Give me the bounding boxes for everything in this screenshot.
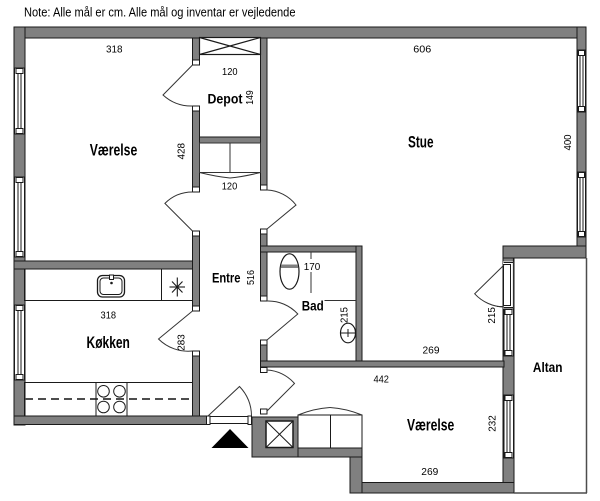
svg-text:Note: Alle mål er cm. Alle mål: Note: Alle mål er cm. Alle mål og invent… [24, 6, 296, 20]
svg-text:Altan: Altan [533, 359, 563, 375]
svg-text:606: 606 [413, 44, 431, 56]
svg-text:318: 318 [101, 310, 117, 322]
svg-text:269: 269 [421, 466, 438, 478]
svg-text:120: 120 [222, 66, 238, 78]
svg-text:232: 232 [486, 415, 498, 432]
svg-text:400: 400 [562, 134, 574, 150]
svg-text:516: 516 [245, 270, 257, 285]
svg-text:269: 269 [423, 345, 440, 357]
svg-text:428: 428 [176, 143, 188, 160]
svg-text:442: 442 [373, 374, 389, 386]
svg-text:Køkken: Køkken [87, 334, 130, 352]
svg-text:283: 283 [176, 334, 188, 351]
svg-text:Bad: Bad [302, 297, 324, 313]
svg-text:215: 215 [339, 307, 351, 323]
svg-text:170: 170 [304, 261, 321, 273]
svg-text:Værelse: Værelse [407, 416, 454, 434]
svg-text:215: 215 [486, 307, 498, 324]
svg-text:120: 120 [222, 180, 238, 192]
svg-text:Værelse: Værelse [90, 142, 138, 160]
svg-text:Depot: Depot [208, 91, 243, 107]
svg-text:Stue: Stue [408, 134, 434, 152]
svg-text:318: 318 [106, 43, 123, 55]
svg-text:Entre: Entre [212, 270, 241, 286]
svg-text:149: 149 [244, 90, 256, 105]
